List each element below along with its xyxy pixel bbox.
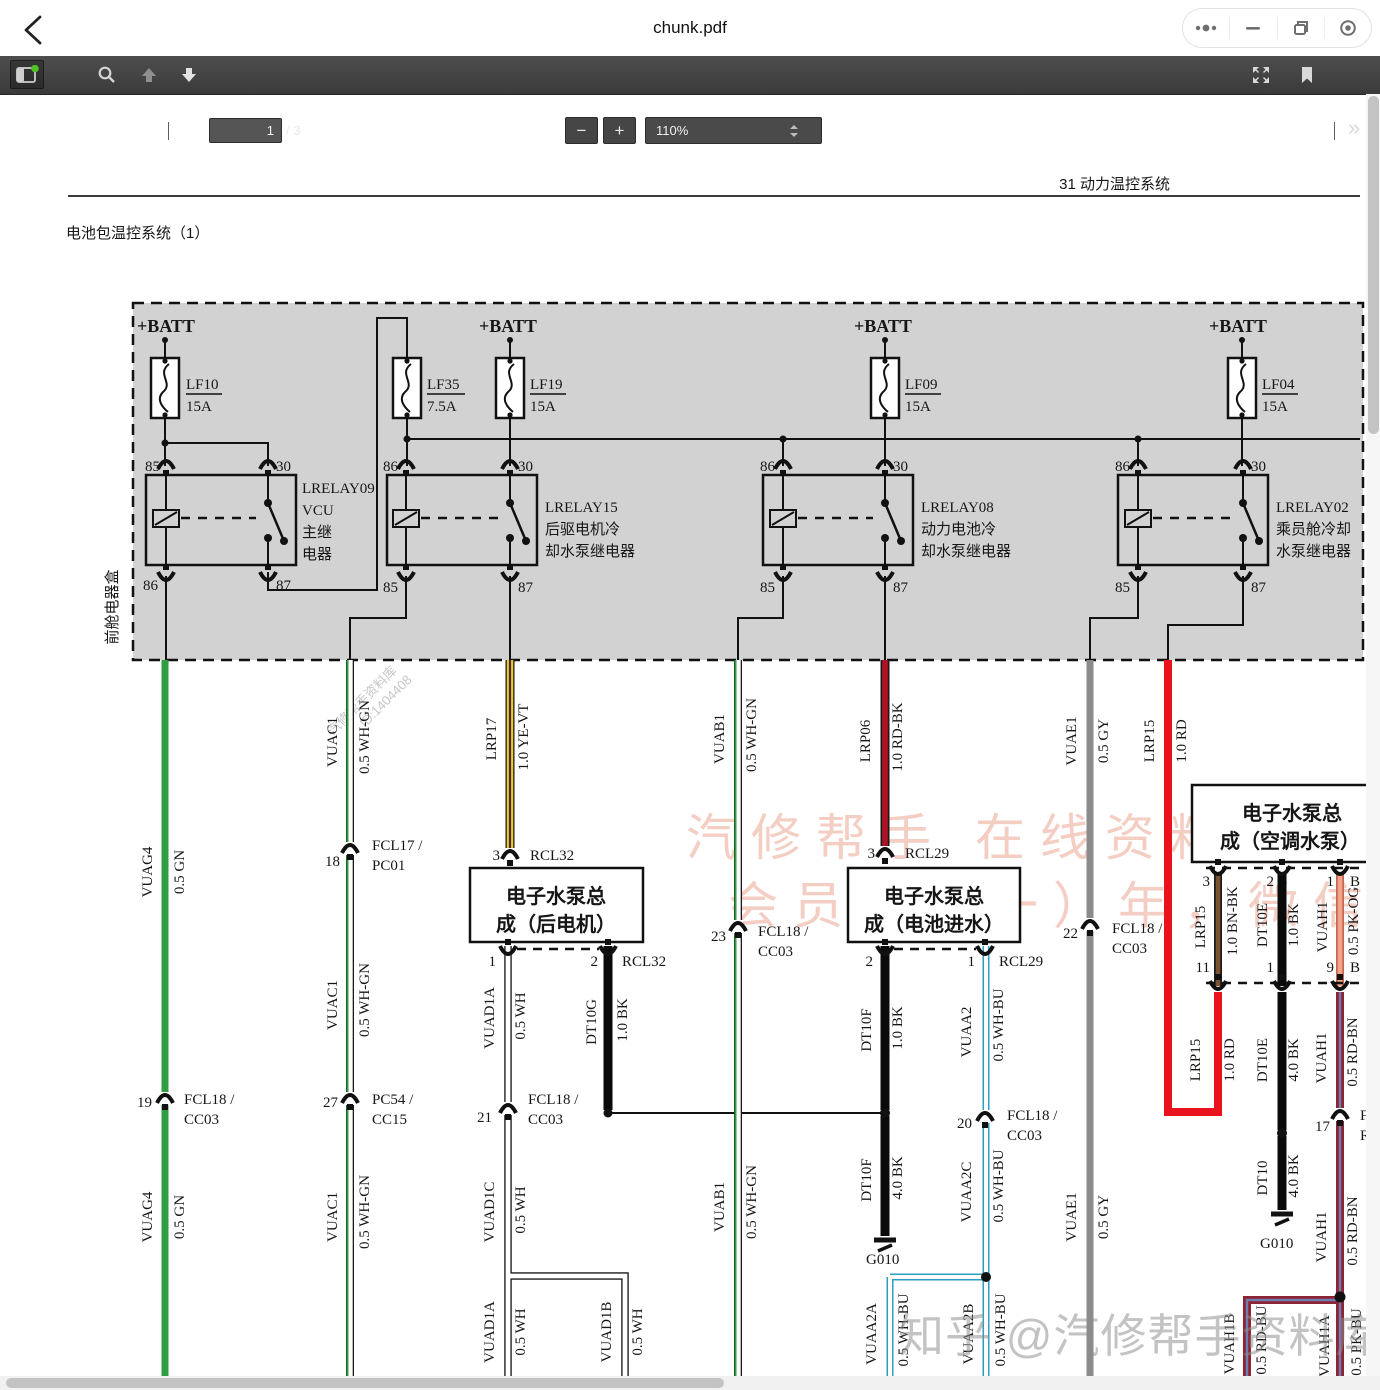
diagram-label: LRP15 bbox=[1142, 720, 1158, 763]
diagram-label: 0.5 WH-GN bbox=[744, 698, 760, 772]
diagram-label: 87 bbox=[276, 578, 292, 594]
diagram-label: 1.0 BK bbox=[1286, 903, 1302, 947]
diagram-label: 31 动力温控系统 bbox=[1059, 176, 1170, 193]
diagram-label: 4.0 BK bbox=[890, 1156, 906, 1200]
diagram-label: 电器 bbox=[302, 546, 332, 563]
diagram-label: VUAG4 bbox=[140, 1191, 156, 1242]
restore-button[interactable] bbox=[1278, 9, 1324, 47]
diagram-label: 30 bbox=[276, 459, 291, 475]
diagram-label: 电子水泵总 bbox=[506, 884, 606, 908]
diagram-label: 1.0 YE-VT bbox=[516, 704, 532, 771]
diagram-label: VUAA2C bbox=[959, 1162, 975, 1223]
diagram-label: 4.0 BK bbox=[1286, 1154, 1302, 1198]
diagram-label: FCL18 / bbox=[1112, 921, 1163, 937]
diagram-label: VUAD1B bbox=[599, 1302, 615, 1363]
diagram-label: VUAC1 bbox=[325, 717, 341, 767]
diagram-label: 2 bbox=[591, 954, 599, 970]
diagram-label: LRELAY09 bbox=[302, 481, 375, 497]
diagram-label: 18 bbox=[325, 854, 340, 870]
diagram-label: 0.5 WH-GN bbox=[744, 1165, 760, 1239]
diagram-label: VUAA2 bbox=[959, 1007, 975, 1058]
diagram-label: FCL17 / bbox=[372, 838, 423, 854]
diagram-label: DT10E bbox=[1255, 903, 1271, 947]
diagram-label: RCL29 bbox=[999, 954, 1043, 970]
diagram-label: LRELAY08 bbox=[921, 500, 994, 516]
diagram-label: LRP15 bbox=[1193, 906, 1209, 949]
diagram-label: 0.5 WH-BU bbox=[991, 1149, 1007, 1222]
diagram-label: 1 bbox=[968, 954, 976, 970]
minimize-button[interactable] bbox=[1230, 9, 1276, 47]
diagram-label: LF04 bbox=[1262, 377, 1295, 393]
bookmark-button[interactable] bbox=[1294, 60, 1320, 89]
more-icon bbox=[1194, 19, 1218, 37]
horizontal-scrollbar-thumb[interactable] bbox=[6, 1378, 724, 1388]
diagram-label: 1.0 BK bbox=[615, 998, 631, 1042]
diagram-label: 30 bbox=[1251, 459, 1266, 475]
diagram-label: 0.5 GN bbox=[172, 1195, 188, 1239]
diagram-label: 85 bbox=[760, 580, 775, 596]
diagram-label: VUAC1 bbox=[325, 980, 341, 1030]
diagram-label: RCL29 bbox=[905, 846, 949, 862]
diagram-label: 0.5 GY bbox=[1096, 719, 1112, 763]
diagram-label: VCU bbox=[302, 503, 334, 519]
diagram-label: VUAB1 bbox=[712, 1182, 728, 1232]
diagram-label: 3 bbox=[868, 846, 876, 862]
diagram-label: 23 bbox=[711, 929, 726, 945]
page-up-icon bbox=[140, 65, 158, 85]
diagram-label: LF09 bbox=[905, 377, 938, 393]
diagram-label: PC54 / bbox=[372, 1092, 414, 1108]
diagram-label: VUAD1C bbox=[482, 1182, 498, 1243]
diagram-label: FCL18 / bbox=[758, 924, 809, 940]
diagram-label: 17 bbox=[1315, 1119, 1331, 1135]
diagram-label: 15A bbox=[530, 399, 556, 415]
diagram-label: 0.5 WH bbox=[513, 992, 529, 1039]
restore-icon bbox=[1292, 19, 1310, 37]
diagram-label: LRELAY15 bbox=[545, 500, 618, 516]
diagram-label: 却水泵继电器 bbox=[921, 543, 1011, 560]
diagram-label: 30 bbox=[893, 459, 908, 475]
diagram-label: 15A bbox=[905, 399, 931, 415]
diagram-label: 乘员舱冷却 bbox=[1276, 521, 1351, 538]
search-icon bbox=[97, 65, 117, 85]
diagram-label: 成（后电机） bbox=[496, 912, 616, 936]
diagram-label: 主继 bbox=[302, 524, 332, 541]
diagram-label: LRP17 bbox=[484, 717, 500, 760]
vertical-scrollbar-thumb[interactable] bbox=[1368, 96, 1379, 434]
diagram-label: B bbox=[1350, 960, 1360, 976]
page-up-button[interactable] bbox=[136, 60, 162, 89]
window-title: chunk.pdf bbox=[0, 0, 1380, 56]
diagram-label: 1 bbox=[1267, 960, 1275, 976]
diagram-label: +BATT bbox=[479, 316, 537, 336]
more-button[interactable] bbox=[1183, 9, 1229, 47]
diagram-label: +BATT bbox=[137, 316, 195, 336]
diagram-label: 0.5 RD-BN bbox=[1345, 1196, 1361, 1265]
diagram-label: LRP15 bbox=[1188, 1039, 1204, 1082]
diagram-label: 2 bbox=[866, 954, 874, 970]
diagram-label: 86 bbox=[383, 459, 399, 475]
diagram-label: 4.0 BK bbox=[1286, 1038, 1302, 1082]
diagram-label: 1.0 RD-BK bbox=[890, 702, 906, 771]
diagram-label: CC03 bbox=[1007, 1128, 1042, 1144]
diagram-label: 15A bbox=[186, 399, 212, 415]
diagram-label: 成（电池进水） bbox=[864, 912, 1004, 936]
diagram-label: 20 bbox=[957, 1116, 972, 1132]
diagram-label: FCL18 / bbox=[184, 1092, 235, 1108]
diagram-label: VUAE1 bbox=[1064, 716, 1080, 765]
diagram-label: G010 bbox=[866, 1252, 899, 1268]
diagram-label: RCL32 bbox=[622, 954, 666, 970]
diagram-label: DT10F bbox=[859, 1158, 875, 1201]
diagram-label: CC03 bbox=[1112, 941, 1147, 957]
diagram-label: FCL18 / bbox=[1007, 1108, 1058, 1124]
diagram-label: 成（空调水泵） bbox=[1220, 829, 1360, 853]
diagram-label: 电子水泵总 bbox=[1242, 801, 1342, 825]
zoom-level-select[interactable]: 110% bbox=[645, 117, 822, 144]
diagram-label: LF10 bbox=[186, 377, 219, 393]
more-tools-button[interactable]: » bbox=[1342, 114, 1364, 142]
divider bbox=[168, 122, 169, 140]
diagram-label: PC01 bbox=[372, 858, 405, 874]
zoom-in-button[interactable]: + bbox=[603, 117, 636, 144]
diagram-label: 水泵继电器 bbox=[1276, 543, 1351, 560]
fullscreen-icon bbox=[1251, 65, 1271, 85]
sidebar-icon bbox=[15, 65, 39, 85]
diagram-label: CC15 bbox=[372, 1112, 407, 1128]
pdf-toolbar: / 3 − + 110% » bbox=[0, 56, 1380, 95]
diagram-label: 电池包温控系统（1） bbox=[66, 225, 209, 242]
diagram-label: 0.5 PK-OG bbox=[1346, 887, 1362, 956]
diagram-label: VUAE1 bbox=[1064, 1192, 1080, 1241]
diagram-label: 3 bbox=[493, 848, 501, 864]
diagram-label: 1 bbox=[1327, 874, 1335, 890]
diagram-label: G010 bbox=[1260, 1236, 1293, 1252]
diagram-label: 电子水泵总 bbox=[884, 884, 984, 908]
minimize-icon bbox=[1244, 19, 1262, 37]
quit-button[interactable] bbox=[1325, 9, 1371, 47]
diagram-label: LRELAY02 bbox=[1276, 500, 1349, 516]
diagram-label: 0.5 WH-GN bbox=[357, 963, 373, 1037]
notification-dot bbox=[31, 65, 39, 72]
diagram-label: CC03 bbox=[528, 1112, 563, 1128]
diagram-label: +BATT bbox=[854, 316, 912, 336]
vertical-scrollbar bbox=[1366, 94, 1380, 1376]
diagram-label: VUAA2A bbox=[864, 1303, 880, 1365]
diagram-label: 85 bbox=[1115, 580, 1130, 596]
page-number-input[interactable] bbox=[209, 118, 282, 143]
diagram-label: 1.0 RD bbox=[1174, 719, 1190, 763]
diagram-label: 86 bbox=[760, 459, 776, 475]
watermark-zhihu: 知乎 @汽修帮手资料库 bbox=[898, 1300, 1380, 1366]
page-count-label: / 3 bbox=[286, 118, 300, 144]
diagram-label: 85 bbox=[383, 580, 398, 596]
diagram-label: 85 bbox=[145, 459, 160, 475]
ground-symbols bbox=[874, 1214, 1293, 1251]
diagram-label: 27 bbox=[323, 1095, 339, 1111]
diagram-label: 0.5 WH bbox=[513, 1308, 529, 1355]
diagram-label: CC03 bbox=[758, 944, 793, 960]
diagram-label: 0.5 GY bbox=[1096, 1195, 1112, 1239]
diagram-label: 19 bbox=[137, 1095, 152, 1111]
diagram-label: 15A bbox=[1262, 399, 1288, 415]
diagram-label: 9 bbox=[1327, 960, 1335, 976]
diagram-label: 却水泵继电器 bbox=[545, 543, 635, 560]
zoom-level-value: 110% bbox=[656, 123, 688, 138]
diagram-label: VUAC1 bbox=[325, 1192, 341, 1242]
divider bbox=[1334, 122, 1335, 140]
diagram-label: 0.5 WH bbox=[513, 1186, 529, 1233]
fullscreen-button[interactable] bbox=[1247, 60, 1275, 89]
diagram-label: 86 bbox=[1115, 459, 1131, 475]
diagram-label: VUAH1 bbox=[1314, 1212, 1330, 1263]
diagram-label: 87 bbox=[518, 580, 534, 596]
diagram-label: 2 bbox=[1267, 874, 1275, 890]
diagram-label: 0.5 RD-BN bbox=[1345, 1017, 1361, 1086]
diagram-label: LF35 bbox=[427, 377, 460, 393]
diagram-label: 0.5 WH-BU bbox=[991, 988, 1007, 1061]
diagram-label: 1.0 RD bbox=[1222, 1038, 1238, 1082]
diagram-label: 11 bbox=[1196, 960, 1210, 976]
diagram-label: 前舱电器盒 bbox=[104, 569, 121, 644]
search-button[interactable] bbox=[93, 60, 121, 89]
sidebar-toggle-button[interactable] bbox=[10, 60, 44, 89]
diagram-label: 0.5 GN bbox=[172, 850, 188, 894]
diagram-label: 0.5 WH-GN bbox=[357, 700, 373, 774]
diagram-label: 后驱电机冷 bbox=[545, 521, 620, 538]
diagram-label: 1.0 BK bbox=[890, 1006, 906, 1050]
horizontal-scrollbar bbox=[0, 1376, 1380, 1390]
diagram-label: VUAB1 bbox=[712, 714, 728, 764]
zoom-out-button[interactable]: − bbox=[565, 117, 598, 144]
diagram-label: RCL32 bbox=[530, 848, 574, 864]
diagram-label: 0.5 WH-GN bbox=[357, 1175, 373, 1249]
diagram-label: 86 bbox=[143, 578, 159, 594]
diagram-label: 3 bbox=[1203, 874, 1211, 890]
diagram-label: DT10 bbox=[1255, 1161, 1271, 1196]
diagram-label: 30 bbox=[518, 459, 533, 475]
diagram-label: 87 bbox=[1251, 580, 1267, 596]
diagram-label: VUAH1 bbox=[1315, 902, 1331, 953]
diagram-label: DT10F bbox=[859, 1008, 875, 1051]
diagram-label: CC03 bbox=[184, 1112, 219, 1128]
diagram-label: 87 bbox=[893, 580, 909, 596]
wiring-diagram: 31 动力温控系统电池包温控系统（1）+BATT+BATT+BATT+BATTL… bbox=[0, 0, 1380, 1390]
bookmark-icon bbox=[1299, 65, 1315, 85]
diagram-label: 22 bbox=[1063, 926, 1078, 942]
diagram-label: 1.0 BN-BK bbox=[1225, 886, 1241, 955]
diagram-label: LF19 bbox=[530, 377, 563, 393]
diagram-label: DT10G bbox=[584, 999, 600, 1045]
page-down-icon bbox=[180, 65, 198, 85]
diagram-label: FCL18 / bbox=[528, 1092, 579, 1108]
diagram-label: 0.5 WH bbox=[630, 1308, 646, 1355]
diagram-label: LRP06 bbox=[858, 719, 874, 762]
diagram-label: VUAD1A bbox=[482, 1301, 498, 1363]
select-spinner-icon bbox=[789, 124, 799, 138]
diagram-label: VUAG4 bbox=[140, 846, 156, 897]
diagram-label: VUAD1A bbox=[482, 987, 498, 1049]
diagram-label: 21 bbox=[477, 1110, 492, 1126]
window-controls bbox=[1182, 8, 1372, 48]
diagram-label: 7.5A bbox=[427, 399, 457, 415]
diagram-label: VUAH1 bbox=[1314, 1033, 1330, 1084]
page-down-button[interactable] bbox=[176, 60, 202, 89]
diagram-label: B bbox=[1350, 874, 1360, 890]
diagram-label: DT10E bbox=[1255, 1038, 1271, 1082]
window-topbar: chunk.pdf bbox=[0, 0, 1380, 56]
diagram-label: 1 bbox=[489, 954, 497, 970]
diagram-label: 动力电池冷 bbox=[921, 521, 996, 538]
diagram-label: +BATT bbox=[1209, 316, 1267, 336]
quit-circle-icon bbox=[1339, 19, 1357, 37]
